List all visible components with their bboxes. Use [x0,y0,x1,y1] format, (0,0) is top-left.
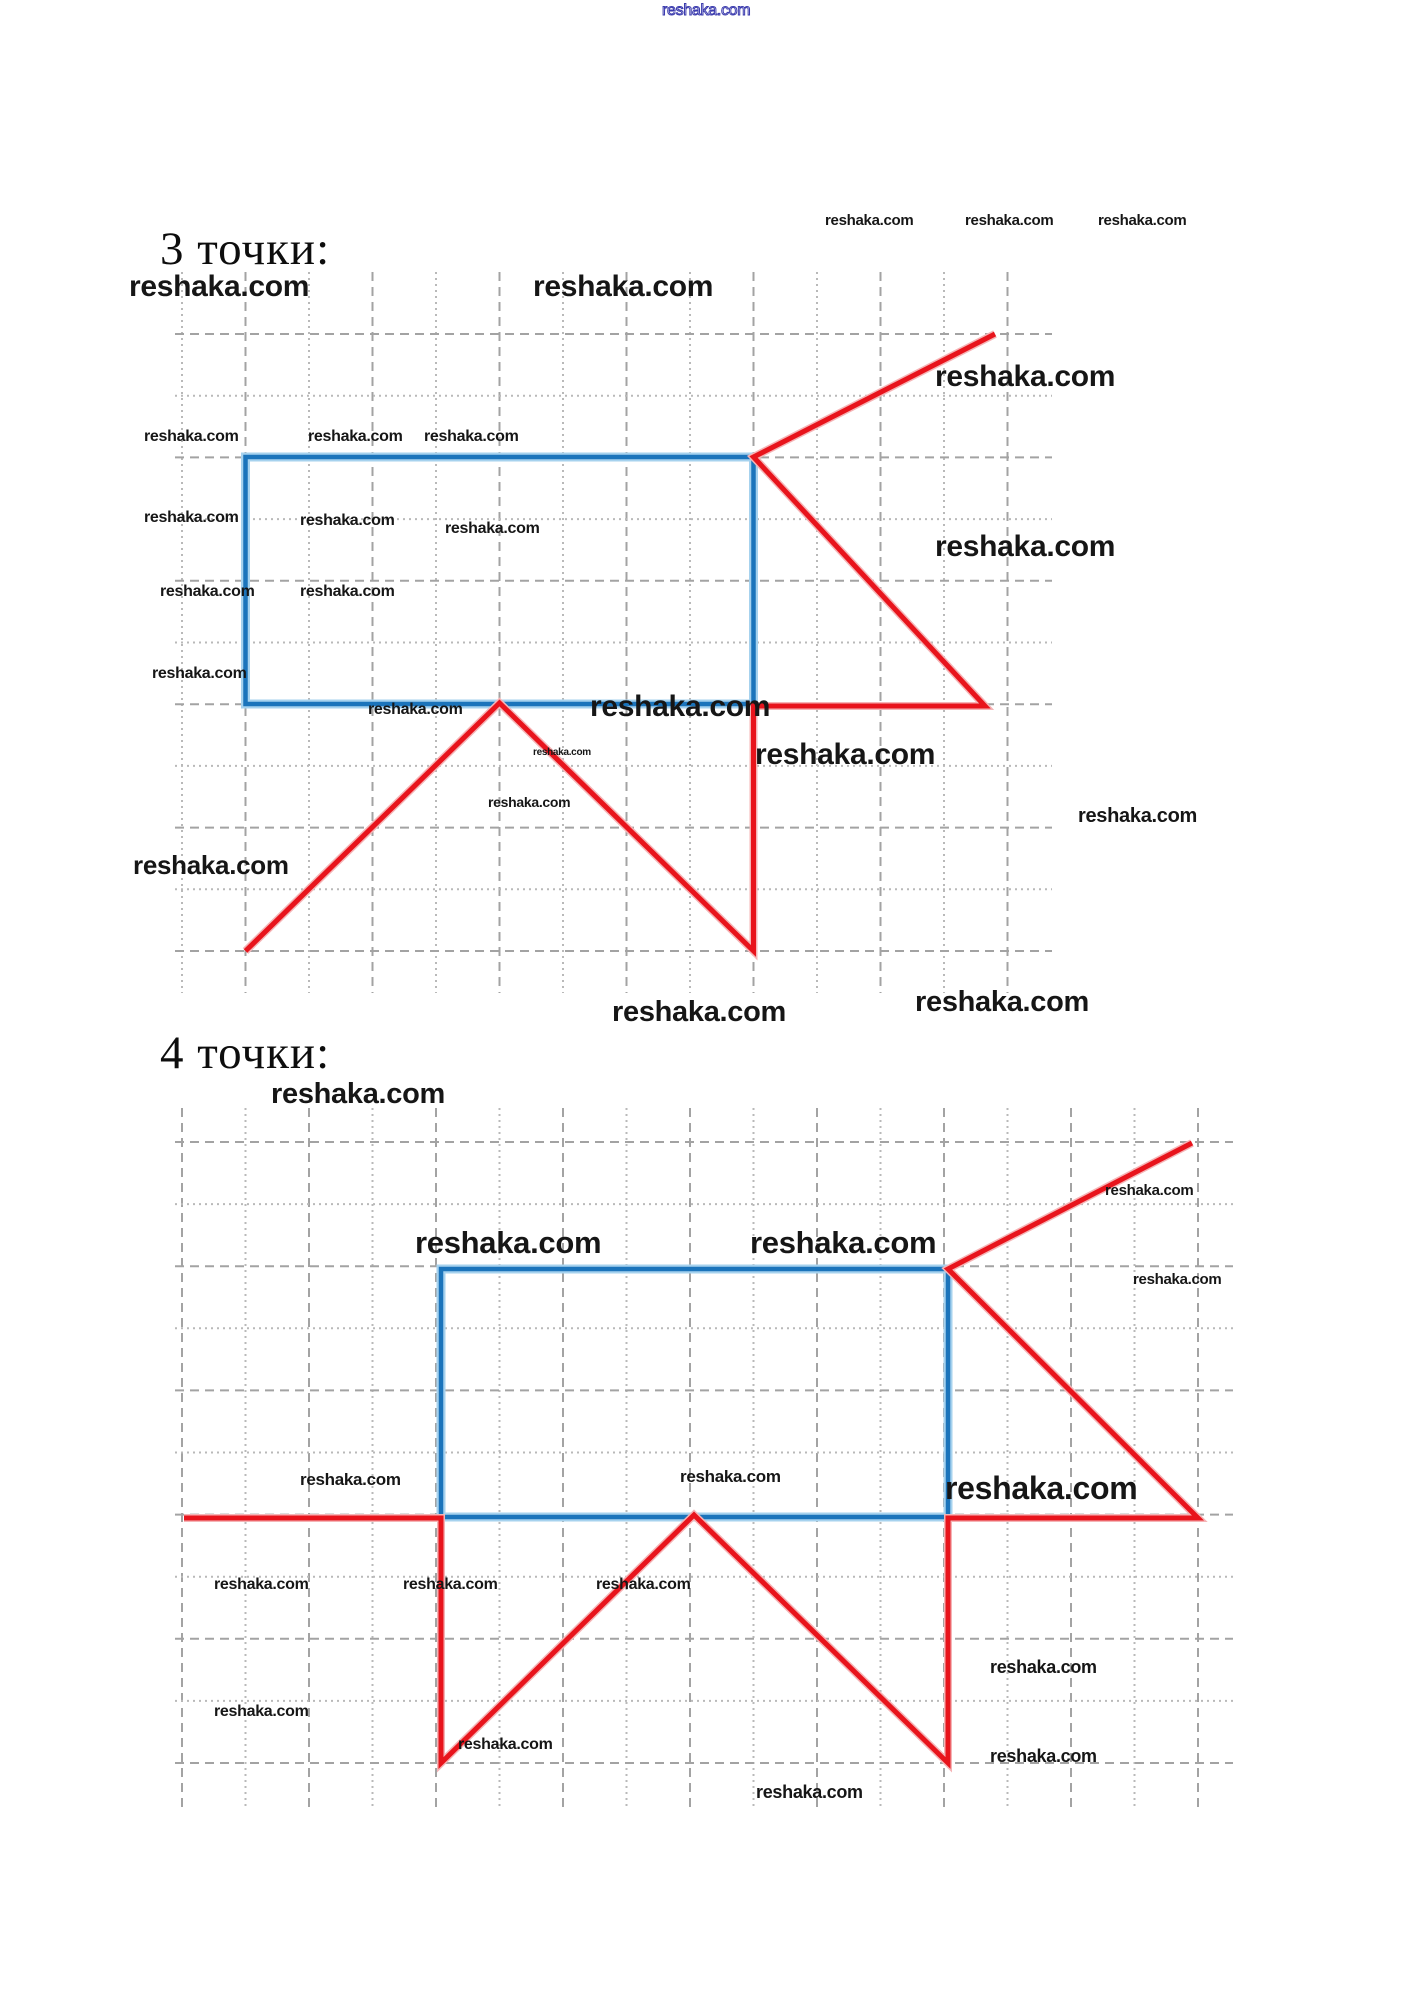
watermark: reshaka.com [533,748,591,758]
watermark: reshaka.com [612,998,786,1027]
watermark: reshaka.com [990,1747,1097,1765]
watermark: reshaka.com [825,213,913,228]
watermark: reshaka.com [750,1227,936,1258]
watermark: reshaka.com [152,666,247,682]
watermark: reshaka.com [965,213,1053,228]
watermark: reshaka.com [214,1704,309,1720]
watermark: reshaka.com [533,272,713,302]
watermark: reshaka.com [368,702,463,718]
watermark: reshaka.com [415,1227,601,1258]
watermark: reshaka.com [144,429,239,445]
watermark: reshaka.com [935,362,1115,392]
worksheet-page: 3 точки:4 точки:reshaka.comreshaka.comre… [0,0,1427,1993]
watermark: reshaka.com [680,1468,781,1485]
watermark: reshaka.com [300,584,395,600]
watermark: reshaka.com [129,272,309,302]
section-heading-points3: 3 точки: [160,226,330,273]
watermark: reshaka.com [1098,213,1186,228]
watermark: reshaka.com [1133,1272,1221,1287]
watermark: reshaka.com [756,1783,863,1801]
watermark: reshaka.com [445,521,540,537]
watermark: reshaka.com [300,1471,401,1488]
watermark: reshaka.com [214,1577,309,1593]
watermark: reshaka.com [271,1080,445,1109]
watermark: reshaka.com [990,1658,1097,1676]
section-heading-points4: 4 точки: [160,1030,330,1077]
watermark: reshaka.com [596,1577,691,1593]
watermark: reshaka.com [662,3,750,19]
watermark: reshaka.com [488,795,570,809]
watermark: reshaka.com [144,510,239,526]
watermark: reshaka.com [915,988,1089,1017]
watermark: reshaka.com [458,1737,553,1753]
watermark: reshaka.com [1078,806,1197,826]
watermark: reshaka.com [403,1577,498,1593]
watermark: reshaka.com [935,532,1115,562]
watermark: reshaka.com [308,429,403,445]
watermark: reshaka.com [133,852,289,878]
watermark: reshaka.com [590,692,770,722]
watermark: reshaka.com [945,1472,1137,1504]
watermark: reshaka.com [755,740,935,770]
watermark: reshaka.com [1105,1183,1193,1198]
watermark: reshaka.com [300,513,395,529]
watermark: reshaka.com [424,429,519,445]
watermark: reshaka.com [160,584,255,600]
